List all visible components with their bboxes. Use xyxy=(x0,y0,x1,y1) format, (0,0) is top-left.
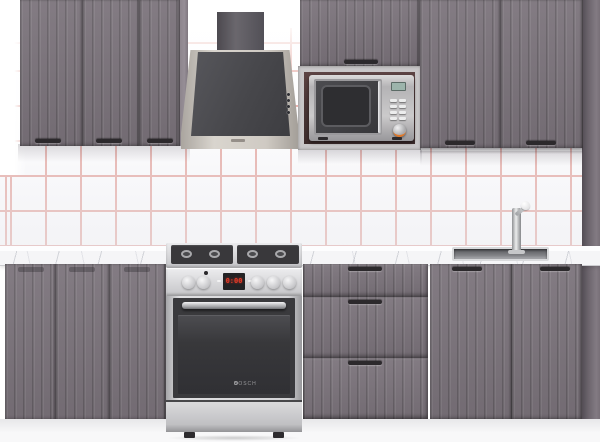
gas-burner xyxy=(247,250,258,258)
burner-grate-left xyxy=(171,245,233,264)
panel-button xyxy=(217,280,221,282)
door-handle xyxy=(452,267,482,271)
gas-burner xyxy=(181,250,192,258)
microwave-button xyxy=(390,111,397,114)
wall-shadow-left xyxy=(18,144,190,162)
drawer-handle xyxy=(348,361,382,365)
upper-left-cabinet-door-2 xyxy=(83,0,140,146)
hood-logo xyxy=(231,139,245,142)
microwave-display xyxy=(391,82,406,91)
microwave-foot xyxy=(318,137,328,140)
microwave-button xyxy=(390,99,397,102)
hood-button xyxy=(287,105,290,108)
hood-button xyxy=(287,93,290,96)
sink-cabinet-door-2 xyxy=(512,264,582,419)
microwave-button xyxy=(399,111,406,114)
drawer-handle xyxy=(348,300,382,304)
drawer-front-3 xyxy=(303,358,428,419)
gas-cooktop xyxy=(166,243,302,268)
microwave-button xyxy=(399,117,406,120)
hood-button xyxy=(287,111,290,114)
cabinet-underside xyxy=(420,148,583,154)
drawer-front-2 xyxy=(303,297,428,358)
faucet-knob xyxy=(521,201,530,210)
stove-storage-drawer xyxy=(166,400,302,432)
kitchen-product-photo: 0:00 BOSCH xyxy=(0,0,600,442)
sink-basin xyxy=(452,247,549,261)
stove-knob xyxy=(182,276,195,289)
indicator-dot xyxy=(204,271,208,275)
freestanding-stove: 0:00 BOSCH xyxy=(166,243,302,440)
oven-glass: BOSCH xyxy=(178,315,290,394)
recessed-grip xyxy=(18,267,44,272)
gas-burner xyxy=(275,250,286,258)
hood-button xyxy=(287,99,290,102)
base-left-cabinet-door-2 xyxy=(56,264,110,420)
oven-handle xyxy=(182,302,286,309)
upper-right-cabinet-door-1 xyxy=(420,0,501,148)
microwave-button xyxy=(390,117,397,120)
microwave-cabinet-liftup-door xyxy=(300,0,420,66)
stove-knob xyxy=(267,276,280,289)
base-left-cabinet-door-3 xyxy=(110,264,166,420)
oven-door: BOSCH xyxy=(173,298,295,398)
microwave-foot xyxy=(392,137,402,140)
stove-knob xyxy=(283,276,296,289)
gas-burner xyxy=(209,250,220,258)
drawer-handle xyxy=(348,267,382,271)
oven-front: BOSCH xyxy=(166,296,302,400)
microwave-window xyxy=(321,85,371,127)
microwave-button xyxy=(399,99,406,102)
microwave-button xyxy=(390,105,397,108)
door-handle xyxy=(540,267,570,271)
wall-shadow-middle xyxy=(298,150,422,164)
tall-cabinet-end-panel xyxy=(582,0,600,428)
door-handle xyxy=(96,139,122,143)
stove-knob xyxy=(197,276,210,289)
microwave-door-handle xyxy=(378,81,381,133)
bosch-logo-text: BOSCH xyxy=(234,381,257,387)
recessed-grip xyxy=(69,267,95,272)
door-handle xyxy=(147,139,173,143)
burner-grate-right xyxy=(237,245,299,264)
upper-right-cabinet-door-2 xyxy=(501,0,583,148)
stove-foot xyxy=(184,432,195,438)
stove-display: 0:00 xyxy=(223,273,245,290)
door-handle xyxy=(344,60,378,64)
hood-chimney-duct xyxy=(217,12,264,52)
door-handle xyxy=(526,141,556,145)
range-hood-glass-panel xyxy=(191,52,290,136)
stove-control-panel: 0:00 xyxy=(166,268,302,296)
stove-foot xyxy=(273,432,284,438)
upper-left-cabinet-door-3 xyxy=(140,0,180,146)
microwave-button xyxy=(399,105,406,108)
upper-left-cabinet-door-1 xyxy=(20,0,83,146)
recessed-grip xyxy=(124,267,150,272)
door-handle xyxy=(35,139,61,143)
stove-knob xyxy=(251,276,264,289)
faucet-base xyxy=(508,250,525,254)
sink-cabinet-door-1 xyxy=(430,264,512,419)
microwave-dial xyxy=(393,124,406,137)
base-left-cabinet-door-1 xyxy=(5,264,56,420)
door-handle xyxy=(445,141,475,145)
